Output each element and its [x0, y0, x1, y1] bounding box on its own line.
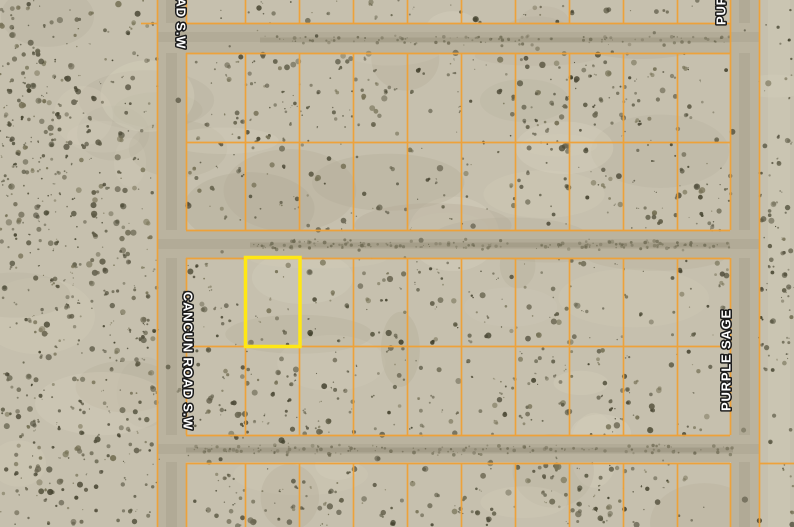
map-viewport: CANCUN ROAD S.WCANCUN ROAD S.WPURPLE SAG… — [0, 0, 794, 527]
purple-sage-label: PURPLE SAGE — [718, 309, 733, 411]
purple-sage-label-top: PURPLE SAGE — [713, 0, 728, 25]
satellite-map[interactable]: CANCUN ROAD S.WCANCUN ROAD S.WPURPLE SAG… — [0, 0, 794, 527]
cancun-road-label: CANCUN ROAD S.W — [181, 292, 196, 430]
cancun-road-label-top: CANCUN ROAD S.W — [174, 0, 189, 49]
